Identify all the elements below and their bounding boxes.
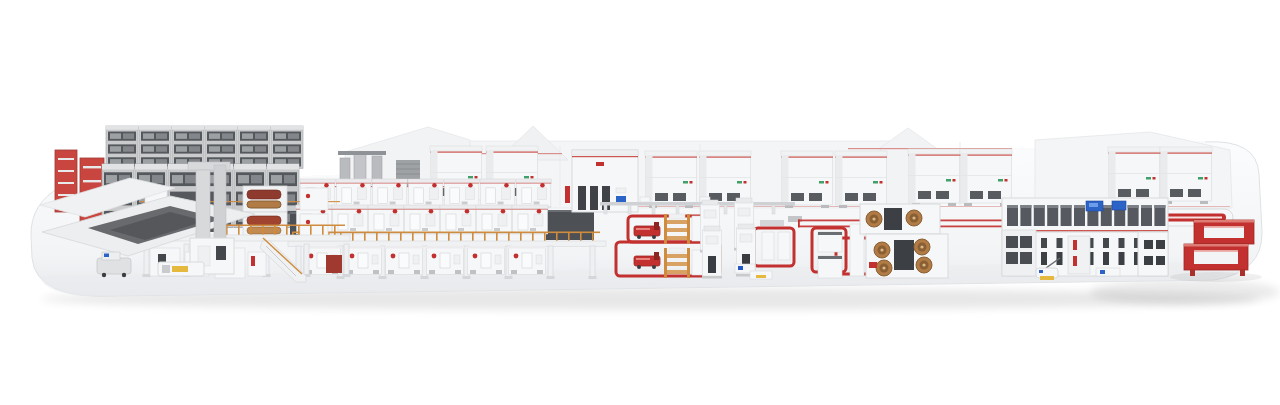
walkway-post [472, 233, 474, 242]
conveyor-stand [604, 205, 607, 214]
glass-cell [1034, 205, 1045, 226]
oven-module-ground [344, 246, 382, 275]
walkway-post [544, 233, 546, 242]
oven-module-ground [508, 246, 546, 275]
scene-canvas [0, 0, 1280, 405]
oven-module-ground [467, 246, 505, 275]
walkway-post [556, 233, 558, 242]
red-cabinet [326, 255, 342, 273]
glass-cell [1007, 205, 1018, 226]
rack-bay-back [139, 126, 171, 168]
glass-cell [1141, 205, 1152, 226]
mezz-post [310, 226, 312, 235]
glass-cell [1020, 205, 1031, 226]
production-line-render [0, 0, 1280, 405]
mezz-post [334, 226, 336, 235]
red-roll [247, 190, 281, 199]
walkway-post [520, 233, 522, 242]
mezz-post [274, 226, 276, 235]
walkway-post [364, 233, 366, 242]
walkway-rail [292, 232, 600, 234]
deck-column [589, 246, 597, 279]
oven-module-ground [426, 246, 464, 275]
walkway-post [568, 233, 570, 242]
walkway-post [388, 233, 390, 242]
conveyor-stand [676, 205, 679, 214]
oven-module-mid [440, 205, 476, 234]
glass-cell [1074, 205, 1085, 226]
oven-module-top [444, 179, 479, 207]
conveyor-stand [724, 205, 727, 214]
red-roll [247, 216, 281, 225]
oven-module-top [336, 179, 371, 207]
mezz-post [286, 226, 288, 235]
walkway-post [400, 233, 402, 242]
walkway-post [484, 233, 486, 242]
red-ladder [565, 186, 570, 203]
panel-screen [616, 196, 626, 202]
walkway-post [508, 233, 510, 242]
rack-bay-back [238, 126, 270, 168]
small-transfer-cart [1096, 268, 1120, 276]
walkway-post [580, 233, 582, 242]
pallet-cart [158, 262, 204, 276]
conveyor-stand [628, 205, 631, 214]
copper-roll [247, 201, 281, 208]
deck-column [547, 246, 555, 279]
walkway-post [352, 233, 354, 242]
mezz-post [322, 226, 324, 235]
walkway-post [424, 233, 426, 242]
glass-cell [1154, 205, 1165, 226]
walkway-post [412, 233, 414, 242]
roll-stand-upper [243, 186, 287, 212]
rack-bay-back [271, 126, 303, 168]
mezz-post [298, 226, 300, 235]
oven-module-mid [476, 205, 512, 234]
oven-module-mid [332, 205, 368, 234]
oven-module-top [516, 179, 551, 207]
dark-end-block [546, 210, 594, 240]
oven-module-ground [385, 246, 423, 275]
walkway-post [496, 233, 498, 242]
oven-module-top [372, 179, 407, 207]
oven-module-mid [512, 205, 548, 234]
mezzanine-deck [288, 241, 606, 247]
walkway-post [592, 233, 594, 242]
walkway-post [436, 233, 438, 242]
mezz-post [262, 226, 264, 235]
red-tag [869, 262, 877, 268]
oven-module-top [480, 179, 515, 207]
glass-cell [1128, 205, 1139, 226]
glass-end-cabinet [1002, 230, 1036, 276]
mezz-leg [343, 244, 351, 277]
agv-screen [104, 254, 109, 258]
mezz-leg [303, 244, 311, 277]
oven-module-top [408, 179, 443, 207]
yellow-cart [750, 271, 772, 279]
walkway-post [448, 233, 450, 242]
hmi-screen [1112, 201, 1126, 210]
racetrack-frame-upper [1194, 220, 1254, 244]
oven-module-mid [404, 205, 440, 234]
final-assembly-line [1002, 198, 1168, 280]
walkway-post [376, 233, 378, 242]
walkway-post [532, 233, 534, 242]
conveyor-stand [652, 205, 655, 214]
mezz-post [250, 226, 252, 235]
glass-cell [1047, 205, 1058, 226]
racetrack-frame-lower [1184, 244, 1248, 270]
copper-roll [247, 227, 281, 234]
slitter-lower [866, 234, 948, 278]
mezz-post [238, 226, 240, 235]
conveyor-stand [772, 205, 775, 214]
oven-module-mid [368, 205, 404, 234]
walkway-post [460, 233, 462, 242]
slitter-upper [860, 204, 940, 234]
glass-cell [1061, 205, 1072, 226]
rack-bay-back [106, 126, 138, 168]
